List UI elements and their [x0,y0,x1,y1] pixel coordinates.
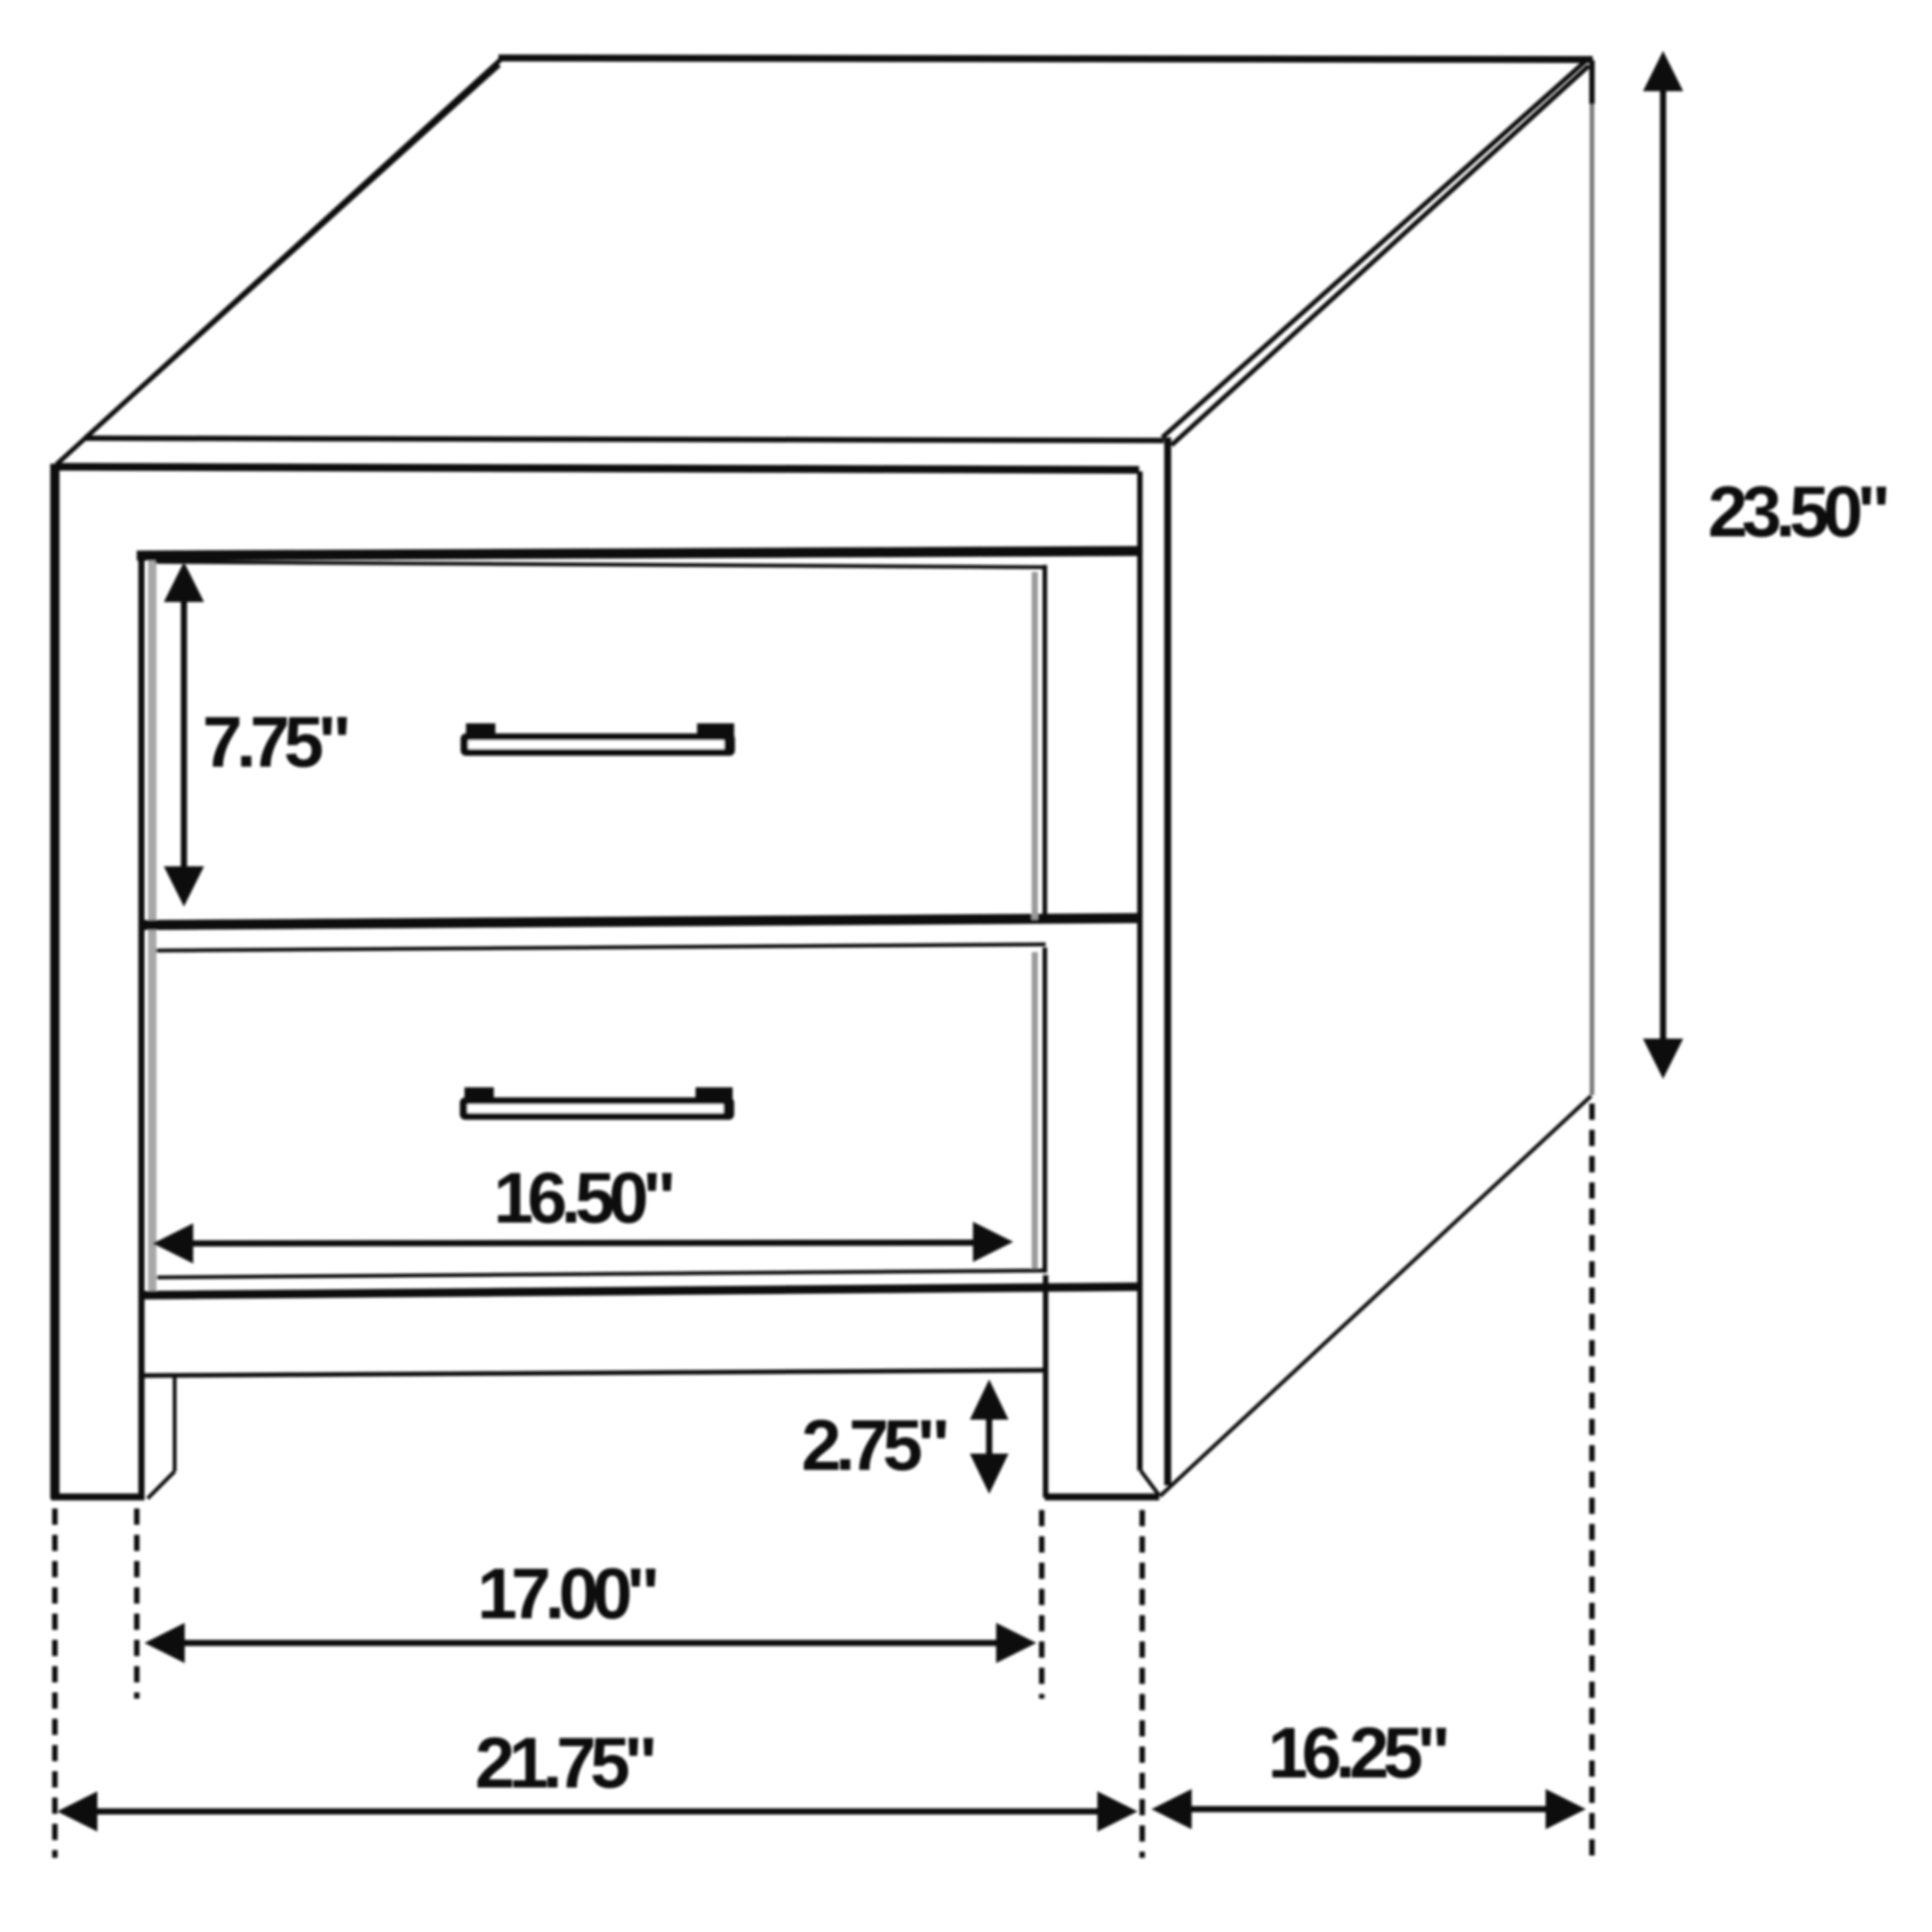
svg-text:7.75": 7.75" [202,702,347,782]
svg-text:17.00": 17.00" [478,1553,656,1634]
svg-text:21.75": 21.75" [475,1723,654,1803]
svg-text:16.25": 16.25" [1268,1713,1447,1793]
svg-text:2.75": 2.75" [801,1405,946,1485]
svg-text:16.50": 16.50" [494,1158,672,1238]
svg-text:23.50": 23.50" [1708,471,1886,552]
